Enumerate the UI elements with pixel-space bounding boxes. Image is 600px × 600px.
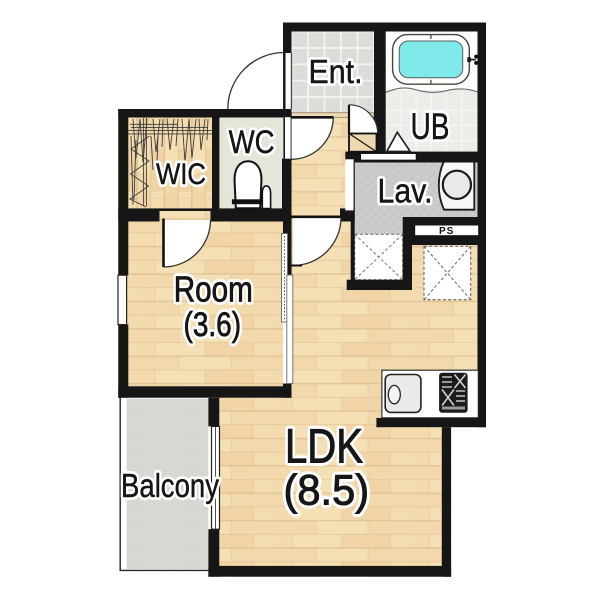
svg-text:(3.6): (3.6): [184, 306, 242, 344]
svg-text:Room: Room: [174, 269, 253, 310]
svg-text:WIC: WIC: [156, 158, 206, 191]
svg-text:Balcony: Balcony: [121, 467, 219, 504]
svg-text:(8.5): (8.5): [284, 467, 370, 515]
svg-text:WC: WC: [229, 124, 275, 160]
svg-text:PS: PS: [439, 226, 454, 237]
svg-text:Ent.: Ent.: [309, 53, 363, 90]
svg-text:UB: UB: [411, 106, 450, 147]
svg-text:Lav.: Lav.: [378, 173, 433, 211]
